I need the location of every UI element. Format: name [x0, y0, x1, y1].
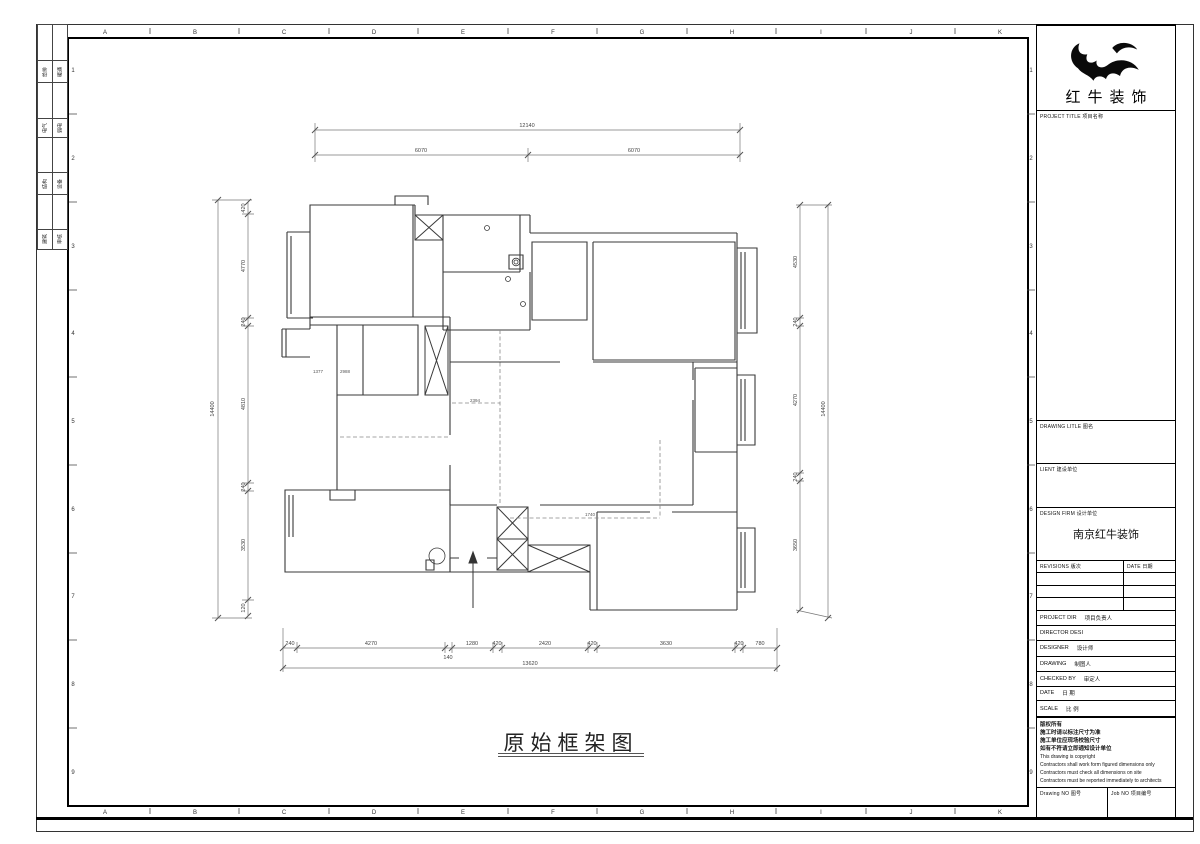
row-label-en: PROJECT DIR — [1040, 615, 1077, 621]
dim-label: 420 — [734, 641, 743, 647]
date-row: DATE 日 期 — [1037, 686, 1175, 701]
drawing-sheet: 给排 暖通 电气 弱电 结构 设备 建筑 审核 A B C D E F G H — [0, 0, 1200, 844]
revisions-table: REVISIONS 版次 DATE 日期 — [1037, 560, 1175, 610]
row-label-en: DESIGNER — [1040, 645, 1069, 651]
revisions-empty-row — [1037, 585, 1175, 597]
revisions-empty-row — [1037, 572, 1175, 584]
grid-numbers-right: 1 2 3 4 5 6 7 8 9 — [1029, 68, 1033, 776]
grid-letter: I — [820, 30, 822, 36]
copyright-notes: 版权所有 施工时请以标注尺寸为准 施工单位应现场校验尺寸 如有不符请立即通知设计… — [1037, 716, 1175, 787]
dimension-lines — [212, 123, 832, 672]
grid-letter: E — [461, 30, 465, 36]
grid-number: 7 — [1029, 594, 1033, 600]
dim-label: 240 — [285, 641, 294, 647]
grid-number: 6 — [71, 507, 75, 513]
dimension-ticks — [215, 127, 831, 671]
row-label-en: DATE — [1040, 690, 1054, 696]
grid-letters-top: A B C D E F G H I J K — [103, 30, 1002, 36]
grid-letter: E — [461, 810, 465, 816]
grid-letter: I — [820, 810, 822, 816]
drawing-title-label: DRAWING LITLE 图名 — [1040, 423, 1093, 430]
grid-letter: C — [282, 30, 287, 36]
grid-letter: J — [910, 30, 913, 36]
dim-label: 3530 — [241, 539, 247, 551]
drawing-row: DRAWING 制图人 — [1037, 656, 1175, 671]
grid-number: 4 — [1029, 331, 1033, 337]
grid-letter: A — [103, 810, 107, 816]
copyright-line: Contractors must be reported immediately… — [1040, 777, 1172, 785]
revisions-date-label: DATE 日期 — [1127, 563, 1153, 570]
plan-label: 2988 — [340, 369, 351, 374]
dim-label: 2420 — [539, 641, 551, 647]
dim-label: 240 — [793, 317, 799, 326]
dim-label: 1280 — [466, 641, 478, 647]
job-no-label: Job NO 项目编号 — [1111, 790, 1152, 797]
number-boxes: Drawing NO 图号 Job NO 项目编号 — [1037, 787, 1175, 817]
dim-label: 420 — [492, 641, 501, 647]
grid-letter: B — [193, 30, 197, 36]
grid-number: 2 — [71, 156, 75, 162]
dimension-labels: 12140 6070 6070 240 4270 140 1280 420 24… — [210, 123, 827, 667]
plan-label: 1740 — [585, 512, 596, 517]
dim-label: 140 — [443, 655, 452, 661]
company-logo-icon — [1067, 38, 1145, 86]
row-label-cn: 日 期 — [1062, 689, 1075, 697]
row-label-cn: 设计师 — [1077, 644, 1094, 652]
grid-letter: B — [193, 810, 197, 816]
dim-label: 4530 — [793, 256, 799, 268]
grid-letter: G — [640, 30, 645, 36]
grid-letter: K — [998, 810, 1002, 816]
dim-label: 12140 — [519, 123, 534, 129]
dim-label: 3630 — [660, 641, 672, 647]
checked-by-row: CHECKED BY 审定人 — [1037, 671, 1175, 686]
row-label-en: CHECKED BY — [1040, 676, 1076, 682]
grid-number: 9 — [1029, 770, 1033, 776]
company-name: 红牛装饰 — [1065, 86, 1153, 107]
copyright-line: 版权所有 — [1040, 721, 1172, 729]
project-title-box: PROJECT TITLE 项目名称 — [1037, 110, 1175, 421]
dim-label: 4810 — [241, 398, 247, 410]
grid-letter: D — [372, 810, 377, 816]
project-dir-row: PROJECT DIR 项目负责人 — [1037, 610, 1175, 625]
grid-number: 1 — [71, 68, 75, 74]
copyright-line: Contractors shall work form figured dime… — [1040, 761, 1172, 769]
dim-label: 420 — [241, 203, 247, 212]
dim-label: 14400 — [821, 401, 827, 416]
grid-number: 1 — [1029, 68, 1033, 74]
grid-number: 3 — [71, 244, 75, 250]
grid-number: 4 — [71, 331, 75, 337]
grid-number: 6 — [1029, 507, 1033, 513]
dim-label: 6070 — [415, 148, 427, 154]
plan-label: 2394 — [470, 398, 481, 403]
grid-letter: F — [551, 810, 555, 816]
dim-label: 780 — [755, 641, 764, 647]
design-firm-label: DESIGN FIRM 设计单位 — [1040, 510, 1097, 517]
copyright-line: 施工时请以标注尺寸为准 — [1040, 729, 1172, 737]
grid-letter: G — [640, 810, 645, 816]
row-label-en: SCALE — [1040, 706, 1058, 712]
revisions-label: REVISIONS 版次 — [1040, 563, 1081, 570]
grid-number: 7 — [71, 594, 75, 600]
dim-label: 420 — [587, 641, 596, 647]
dim-label: 240 — [241, 482, 247, 491]
grid-letters-bottom: A B C D E F G H I J K — [103, 810, 1002, 816]
row-label-en: DIRECTOR DESI — [1040, 630, 1083, 636]
grid-numbers-left: 1 2 3 4 5 6 7 8 9 — [71, 68, 75, 776]
grid-letter: H — [730, 810, 734, 816]
company-logo-section: 红牛装饰 — [1037, 26, 1175, 110]
floorplan-canvas: A B C D E F G H I J K A B C D E F G H I … — [0, 0, 1200, 844]
director-row: DIRECTOR DESI — [1037, 625, 1175, 640]
copyright-line: 如有不符请立即通知设计单位 — [1040, 745, 1172, 753]
design-firm-box: DESIGN FIRM 设计单位 南京红牛装饰 — [1037, 507, 1175, 560]
grid-number: 9 — [71, 770, 75, 776]
dim-label: 120 — [241, 603, 247, 612]
grid-letter: C — [282, 810, 287, 816]
scale-row: SCALE 比 例 — [1037, 700, 1175, 716]
drawing-title-underline — [498, 756, 644, 757]
grid-number: 3 — [1029, 244, 1033, 250]
copyright-line: 施工单位应现场校验尺寸 — [1040, 737, 1172, 745]
plan-label: 1377 — [313, 369, 324, 374]
revisions-empty-row — [1037, 597, 1175, 609]
row-label-cn: 审定人 — [1084, 675, 1101, 683]
grid-letter: H — [730, 30, 734, 36]
client-box: LIENT 建设单位 — [1037, 463, 1175, 507]
design-firm-name: 南京红牛装饰 — [1037, 526, 1175, 542]
designer-row: DESIGNER 设计师 — [1037, 640, 1175, 656]
client-label: LIENT 建设单位 — [1040, 466, 1077, 473]
project-title-label: PROJECT TITLE 项目名称 — [1040, 113, 1103, 120]
shaft-boxes — [415, 215, 590, 572]
grid-number: 2 — [1029, 156, 1033, 162]
grid-number: 5 — [71, 419, 75, 425]
grid-number: 8 — [1029, 682, 1033, 688]
row-label-en: DRAWING — [1040, 661, 1066, 667]
row-label-cn: 项目负责人 — [1085, 614, 1113, 622]
grid-letter: F — [551, 30, 555, 36]
dim-label: 240 — [793, 472, 799, 481]
dim-label: 4270 — [793, 394, 799, 406]
dim-label: 4270 — [365, 641, 377, 647]
dim-label: 6070 — [628, 148, 640, 154]
drawing-no-label: Drawing NO 图号 — [1040, 790, 1081, 797]
grid-letter: K — [998, 30, 1002, 36]
grid-letter: A — [103, 30, 107, 36]
grid-letter: J — [910, 810, 913, 816]
row-label-cn: 制图人 — [1074, 660, 1091, 668]
dim-label: 4770 — [241, 260, 247, 272]
grid-ticks-sides — [69, 114, 1035, 728]
grid-number: 5 — [1029, 419, 1033, 425]
title-block: 红牛装饰 PROJECT TITLE 项目名称 DRAWING LITLE 图名… — [1036, 24, 1176, 818]
dim-label: 13620 — [522, 661, 537, 667]
copyright-line: Contractors must check all dimensions on… — [1040, 769, 1172, 777]
row-label-cn: 比 例 — [1066, 705, 1079, 713]
dim-label: 240 — [241, 317, 247, 326]
copyright-line: This drawing is copyright — [1040, 753, 1172, 761]
dim-label: 3650 — [793, 539, 799, 551]
grid-letter: D — [372, 30, 377, 36]
entry-arrow — [469, 552, 477, 608]
drawing-title-underline — [498, 753, 644, 754]
dim-label: 14400 — [210, 401, 216, 416]
drawing-title-box: DRAWING LITLE 图名 — [1037, 420, 1175, 463]
grid-number: 8 — [71, 682, 75, 688]
